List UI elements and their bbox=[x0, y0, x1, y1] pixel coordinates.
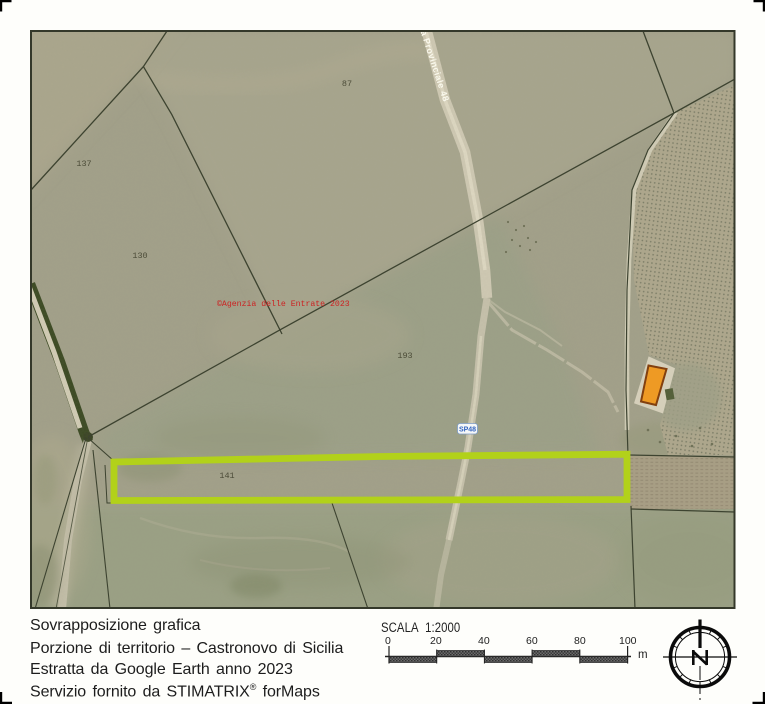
svg-text:87: 87 bbox=[342, 79, 352, 89]
svg-text:SP48: SP48 bbox=[459, 427, 476, 434]
svg-text:141: 141 bbox=[219, 471, 234, 481]
svg-text:137: 137 bbox=[76, 159, 91, 169]
svg-text:130: 130 bbox=[132, 251, 147, 261]
svg-text:©Agenzia delle Entrate 2023: ©Agenzia delle Entrate 2023 bbox=[217, 299, 350, 309]
svg-text:193: 193 bbox=[397, 351, 412, 361]
